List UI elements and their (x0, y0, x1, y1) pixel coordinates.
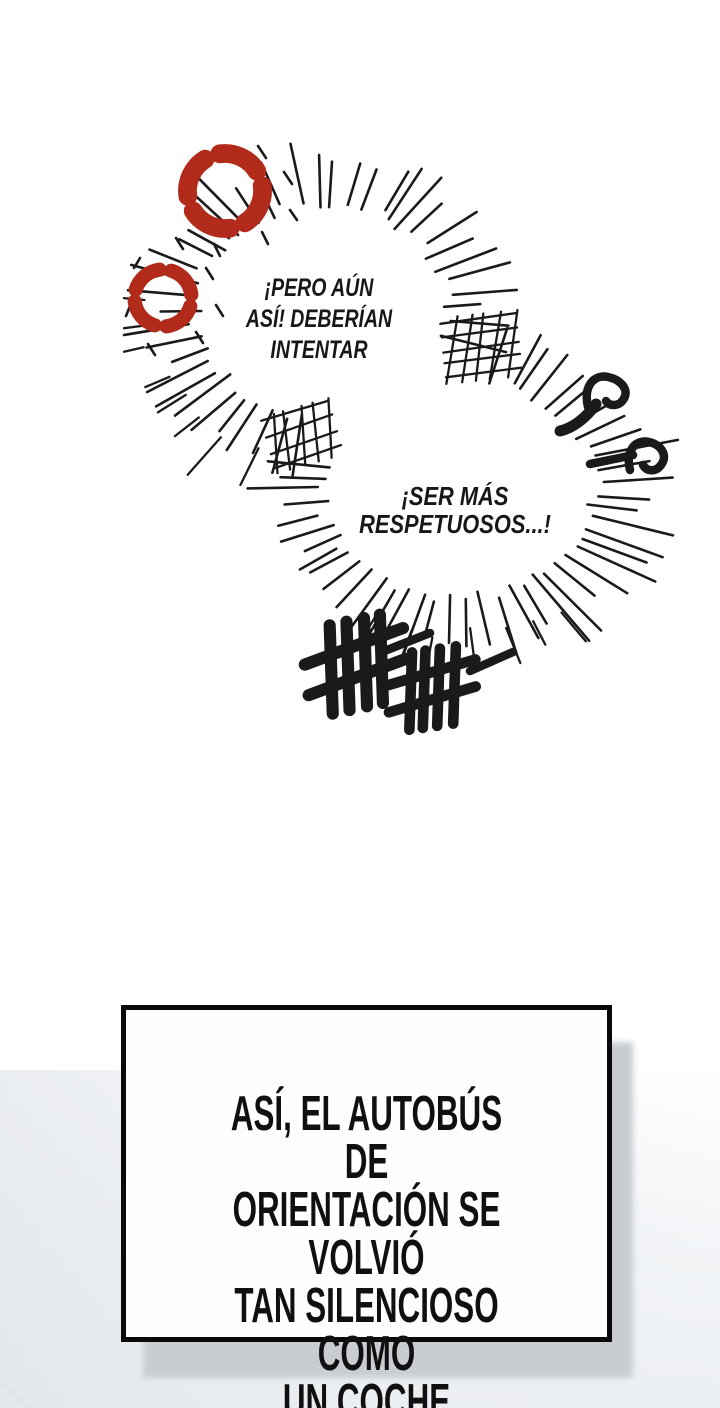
narration-line: ORIENTACIÓN SE VOLVIÓ (213, 1186, 521, 1282)
speech-text-primary: ¡PERO AÚN ASÍ! DEBERÍAN INTENTAR (202, 273, 436, 366)
burst-dash-lines (124, 144, 678, 671)
crosshatch-mark-icon (260, 398, 344, 473)
anger-vein-icon (133, 268, 193, 328)
speech-line: INTENTAR (202, 335, 436, 366)
huff-mark-icon (560, 377, 626, 431)
narration-box: ASÍ, EL AUTOBÚS DE ORIENTACIÓN SE VOLVIÓ… (121, 1005, 612, 1342)
speech-text-secondary: ¡SER MÁS RESPETUOSOS...! (329, 482, 581, 538)
crosshatch-mark-icon (439, 310, 524, 384)
irritation-scribble-icon (381, 644, 484, 732)
speech-line: ¡PERO AÚN (202, 273, 436, 304)
anger-vein-icon (178, 144, 272, 238)
speech-line: ASÍ! DEBERÍAN (202, 304, 436, 335)
irritation-scribble-icon (295, 611, 417, 718)
shout-burst-bubble (0, 0, 720, 780)
narration-text: ASÍ, EL AUTOBÚS DE ORIENTACIÓN SE VOLVIÓ… (213, 1090, 521, 1408)
comic-panel: ¡PERO AÚN ASÍ! DEBERÍAN INTENTAR ¡SER MÁ… (0, 0, 720, 1408)
speech-line: ¡SER MÁS (329, 482, 581, 510)
narration-line: UN COCHE FÚNEBRE. (213, 1378, 521, 1408)
huff-mark-icon (590, 442, 664, 471)
narration-line: TAN SILENCIOSO COMO (213, 1282, 521, 1378)
narration-line: ASÍ, EL AUTOBÚS DE (213, 1090, 521, 1186)
speech-line: RESPETUOSOS...! (329, 510, 581, 538)
irritation-scribble-icon (387, 633, 513, 671)
